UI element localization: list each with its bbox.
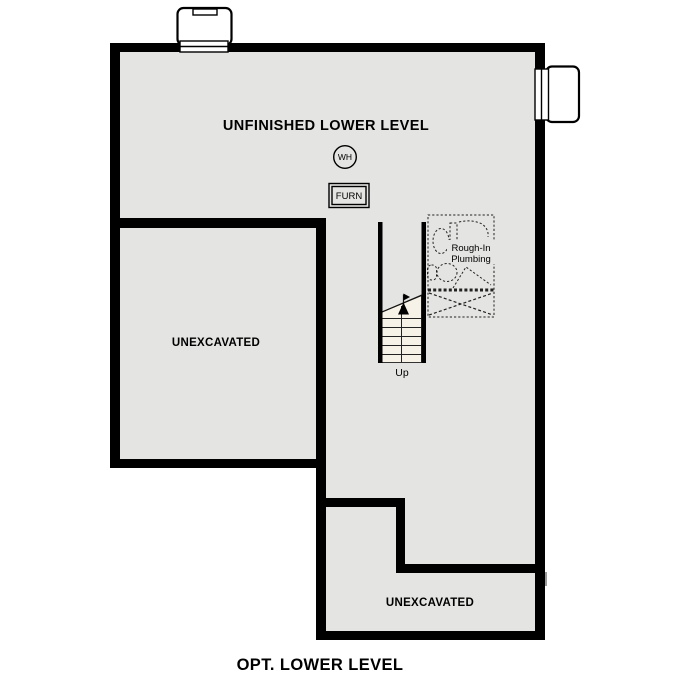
wall-leftroom-top bbox=[110, 218, 326, 228]
wall-right-tick-mark bbox=[545, 572, 547, 586]
stair-wall-right bbox=[422, 222, 427, 363]
wall-step-horizontal-2 bbox=[396, 564, 545, 573]
right-window-well bbox=[535, 67, 579, 123]
furnace: FURN bbox=[329, 184, 369, 208]
plumbing-label-line1: Rough-In bbox=[451, 243, 490, 254]
bottom-unexcavated-label: UNEXCAVATED bbox=[386, 597, 474, 609]
water-heater-label: WH bbox=[338, 152, 352, 162]
top-window-well bbox=[178, 8, 232, 52]
floor-plan: WH FURN Rough-In Plumbing UNFINISHED LOW… bbox=[0, 0, 687, 687]
top-window-well-rung bbox=[193, 9, 217, 15]
wall-left bbox=[110, 43, 120, 468]
wall-top bbox=[110, 43, 545, 52]
right-window-well-outline bbox=[546, 67, 579, 123]
wall-leftroom-bottom bbox=[110, 459, 326, 468]
wall-right bbox=[535, 43, 545, 640]
left-unexcavated-label: UNEXCAVATED bbox=[172, 337, 260, 349]
plumbing-label-line2: Plumbing bbox=[451, 254, 491, 265]
main-room-label: UNFINISHED LOWER LEVEL bbox=[223, 118, 429, 134]
wall-lower-left bbox=[316, 459, 326, 640]
wall-step-horizontal-1 bbox=[316, 498, 405, 507]
water-heater: WH bbox=[334, 146, 357, 169]
stair-wall-left bbox=[378, 222, 383, 363]
furnace-label: FURN bbox=[336, 191, 363, 202]
wall-bottom bbox=[316, 631, 545, 640]
wall-step-vertical bbox=[396, 498, 405, 573]
stairs-up-label: Up bbox=[395, 367, 409, 379]
plan-caption: OPT. LOWER LEVEL bbox=[237, 656, 404, 674]
wall-leftroom-right bbox=[316, 218, 326, 468]
floor-plan-svg: WH FURN Rough-In Plumbing UNFINISHED LOW… bbox=[0, 0, 687, 687]
